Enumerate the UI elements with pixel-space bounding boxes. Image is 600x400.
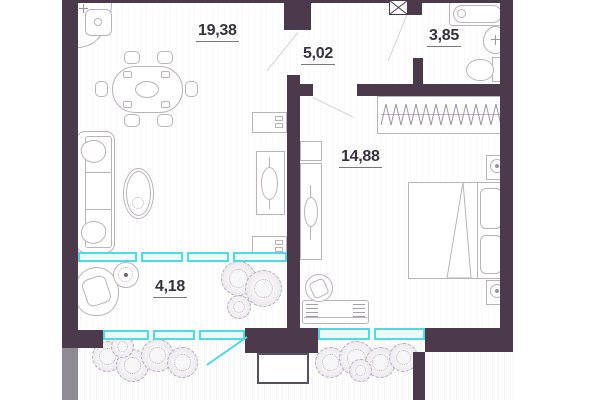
area-label-hallway: 5,02 bbox=[301, 45, 335, 65]
bed-throw-icon bbox=[444, 181, 476, 280]
desk-edge-line bbox=[304, 317, 367, 318]
wall-balcony-bottom-left bbox=[62, 330, 103, 348]
entrance-porch bbox=[257, 353, 309, 384]
desk-drawer-lines bbox=[306, 304, 318, 317]
bed-pillow bbox=[480, 235, 502, 274]
window-mullion bbox=[147, 330, 155, 340]
sofa-cushion-divider bbox=[85, 172, 112, 173]
bedroom-shelf bbox=[300, 141, 322, 161]
sheet-line bbox=[477, 183, 478, 278]
area-label-living-room: 19,38 bbox=[196, 22, 239, 42]
table-platter bbox=[135, 81, 159, 98]
dining-chair bbox=[157, 51, 173, 64]
cabinet-handle bbox=[275, 116, 283, 121]
plant bbox=[227, 295, 251, 319]
wall-top-living bbox=[62, 0, 288, 3]
tap-icon bbox=[83, 4, 84, 13]
wall-top-hallway bbox=[311, 0, 389, 3]
dining-chair bbox=[124, 114, 140, 127]
plant bbox=[167, 347, 198, 378]
wall-balcony-bottom-right bbox=[245, 328, 318, 353]
sink-drain bbox=[94, 18, 102, 26]
cabinet-handle bbox=[275, 240, 283, 245]
bed-pillow bbox=[480, 188, 502, 229]
window-balcony-bottom bbox=[103, 330, 245, 340]
window-mullion bbox=[227, 252, 235, 262]
dining-chair bbox=[185, 81, 198, 97]
window-mullion bbox=[368, 328, 376, 340]
dining-chair bbox=[95, 81, 108, 97]
cabinet-handle bbox=[275, 123, 283, 128]
wall-pillar-hallway bbox=[284, 0, 311, 30]
window-bedroom-bottom bbox=[318, 328, 425, 340]
plant-dot bbox=[124, 273, 128, 277]
dining-chair bbox=[124, 51, 140, 64]
wall-bathroom-left-stub bbox=[413, 58, 423, 96]
wall-exterior-left bbox=[62, 0, 78, 332]
lamp-dot bbox=[495, 164, 499, 168]
wall-bedroom-bottom bbox=[425, 328, 513, 352]
bathtub-drain bbox=[457, 9, 466, 18]
lamp-dot bbox=[495, 289, 499, 293]
table-decor bbox=[132, 197, 144, 209]
area-label-bedroom: 14,88 bbox=[339, 148, 382, 168]
place-setting bbox=[161, 101, 170, 108]
wall-top-bathroom bbox=[420, 0, 500, 3]
tv-screen bbox=[261, 167, 278, 200]
place-setting bbox=[123, 71, 132, 78]
entry-door-icon bbox=[389, 0, 408, 15]
bedroom-tv-screen bbox=[304, 197, 318, 227]
wall-bedroom-top-left bbox=[287, 84, 313, 96]
floor-plan: 19,38 5,02 3,85 14,88 4,18 bbox=[0, 0, 600, 400]
sofa-cushion-divider bbox=[85, 209, 112, 210]
window-mullion bbox=[135, 252, 143, 262]
wall-gray-segment bbox=[62, 348, 78, 400]
window-living-balcony bbox=[78, 252, 287, 262]
desk-drawer-lines bbox=[353, 304, 365, 317]
area-label-bathroom: 3,85 bbox=[427, 27, 461, 47]
clothes-hangers-icon bbox=[379, 98, 504, 132]
wall-bedroom-top-right bbox=[357, 84, 513, 96]
plant bbox=[245, 270, 282, 307]
place-setting bbox=[161, 71, 170, 78]
window-mullion bbox=[193, 330, 201, 340]
wall-exterior-right bbox=[500, 0, 513, 352]
window-mullion bbox=[181, 252, 189, 262]
wall-living-bedroom-divider bbox=[287, 75, 300, 330]
basin-tap-icon bbox=[495, 35, 496, 45]
place-setting bbox=[123, 101, 132, 108]
coffee-table-top bbox=[126, 171, 151, 216]
dining-chair bbox=[157, 114, 173, 127]
plant bbox=[349, 359, 372, 382]
toilet-bowl bbox=[466, 59, 494, 81]
area-label-balcony: 4,18 bbox=[153, 278, 187, 298]
wall-stub-below bbox=[413, 352, 425, 400]
